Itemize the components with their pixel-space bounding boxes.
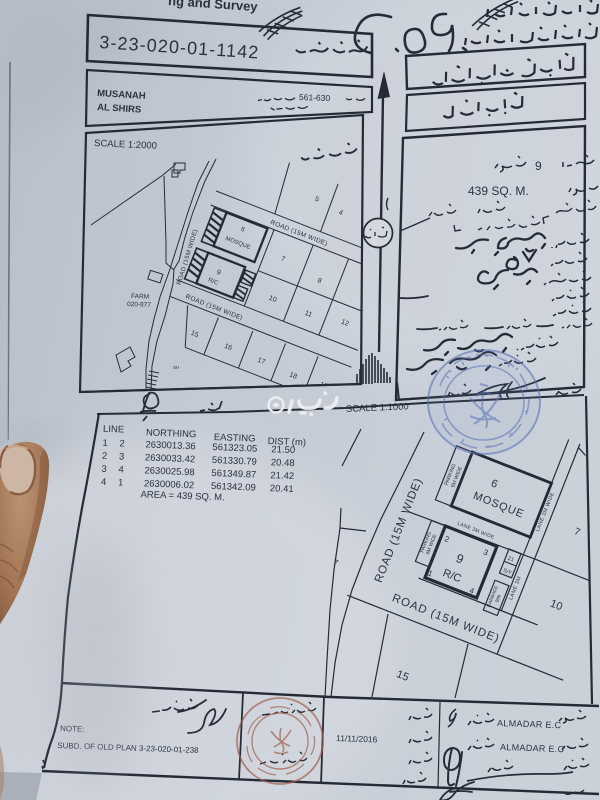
svg-text:2: 2 [119,438,125,449]
svg-text:1: 1 [118,477,124,488]
svg-text:2630013.36: 2630013.36 [145,439,196,452]
svg-text:2630025.98: 2630025.98 [144,465,195,478]
svg-text:21.42: 21.42 [270,470,294,482]
svg-text:2630033.42: 2630033.42 [145,452,196,465]
svg-text:9: 9 [535,159,542,173]
svg-text:20.48: 20.48 [271,457,295,469]
svg-text:561-630: 561-630 [299,92,331,103]
svg-text:4: 4 [118,464,124,475]
svg-text:439 SQ. M.: 439 SQ. M. [468,184,529,198]
svg-text:3: 3 [101,464,107,475]
svg-text:2: 2 [102,451,108,462]
svg-text:SH: SH [173,365,179,370]
svg-text:NORTHING: NORTHING [146,427,197,440]
svg-text:20.41: 20.41 [270,483,294,495]
svg-text:4: 4 [101,477,107,488]
svg-text:561349.87: 561349.87 [211,468,256,481]
svg-text:21.50: 21.50 [271,444,295,456]
svg-text:11/11/2016: 11/11/2016 [336,733,378,744]
svg-text:1: 1 [102,438,108,449]
svg-text:020-877: 020-877 [127,301,151,309]
svg-text:FARM: FARM [131,293,149,301]
svg-text:LINE: LINE [103,424,125,436]
svg-text:3: 3 [119,451,125,462]
svg-text:561323.05: 561323.05 [212,442,257,455]
svg-text:561330.79: 561330.79 [212,455,257,468]
